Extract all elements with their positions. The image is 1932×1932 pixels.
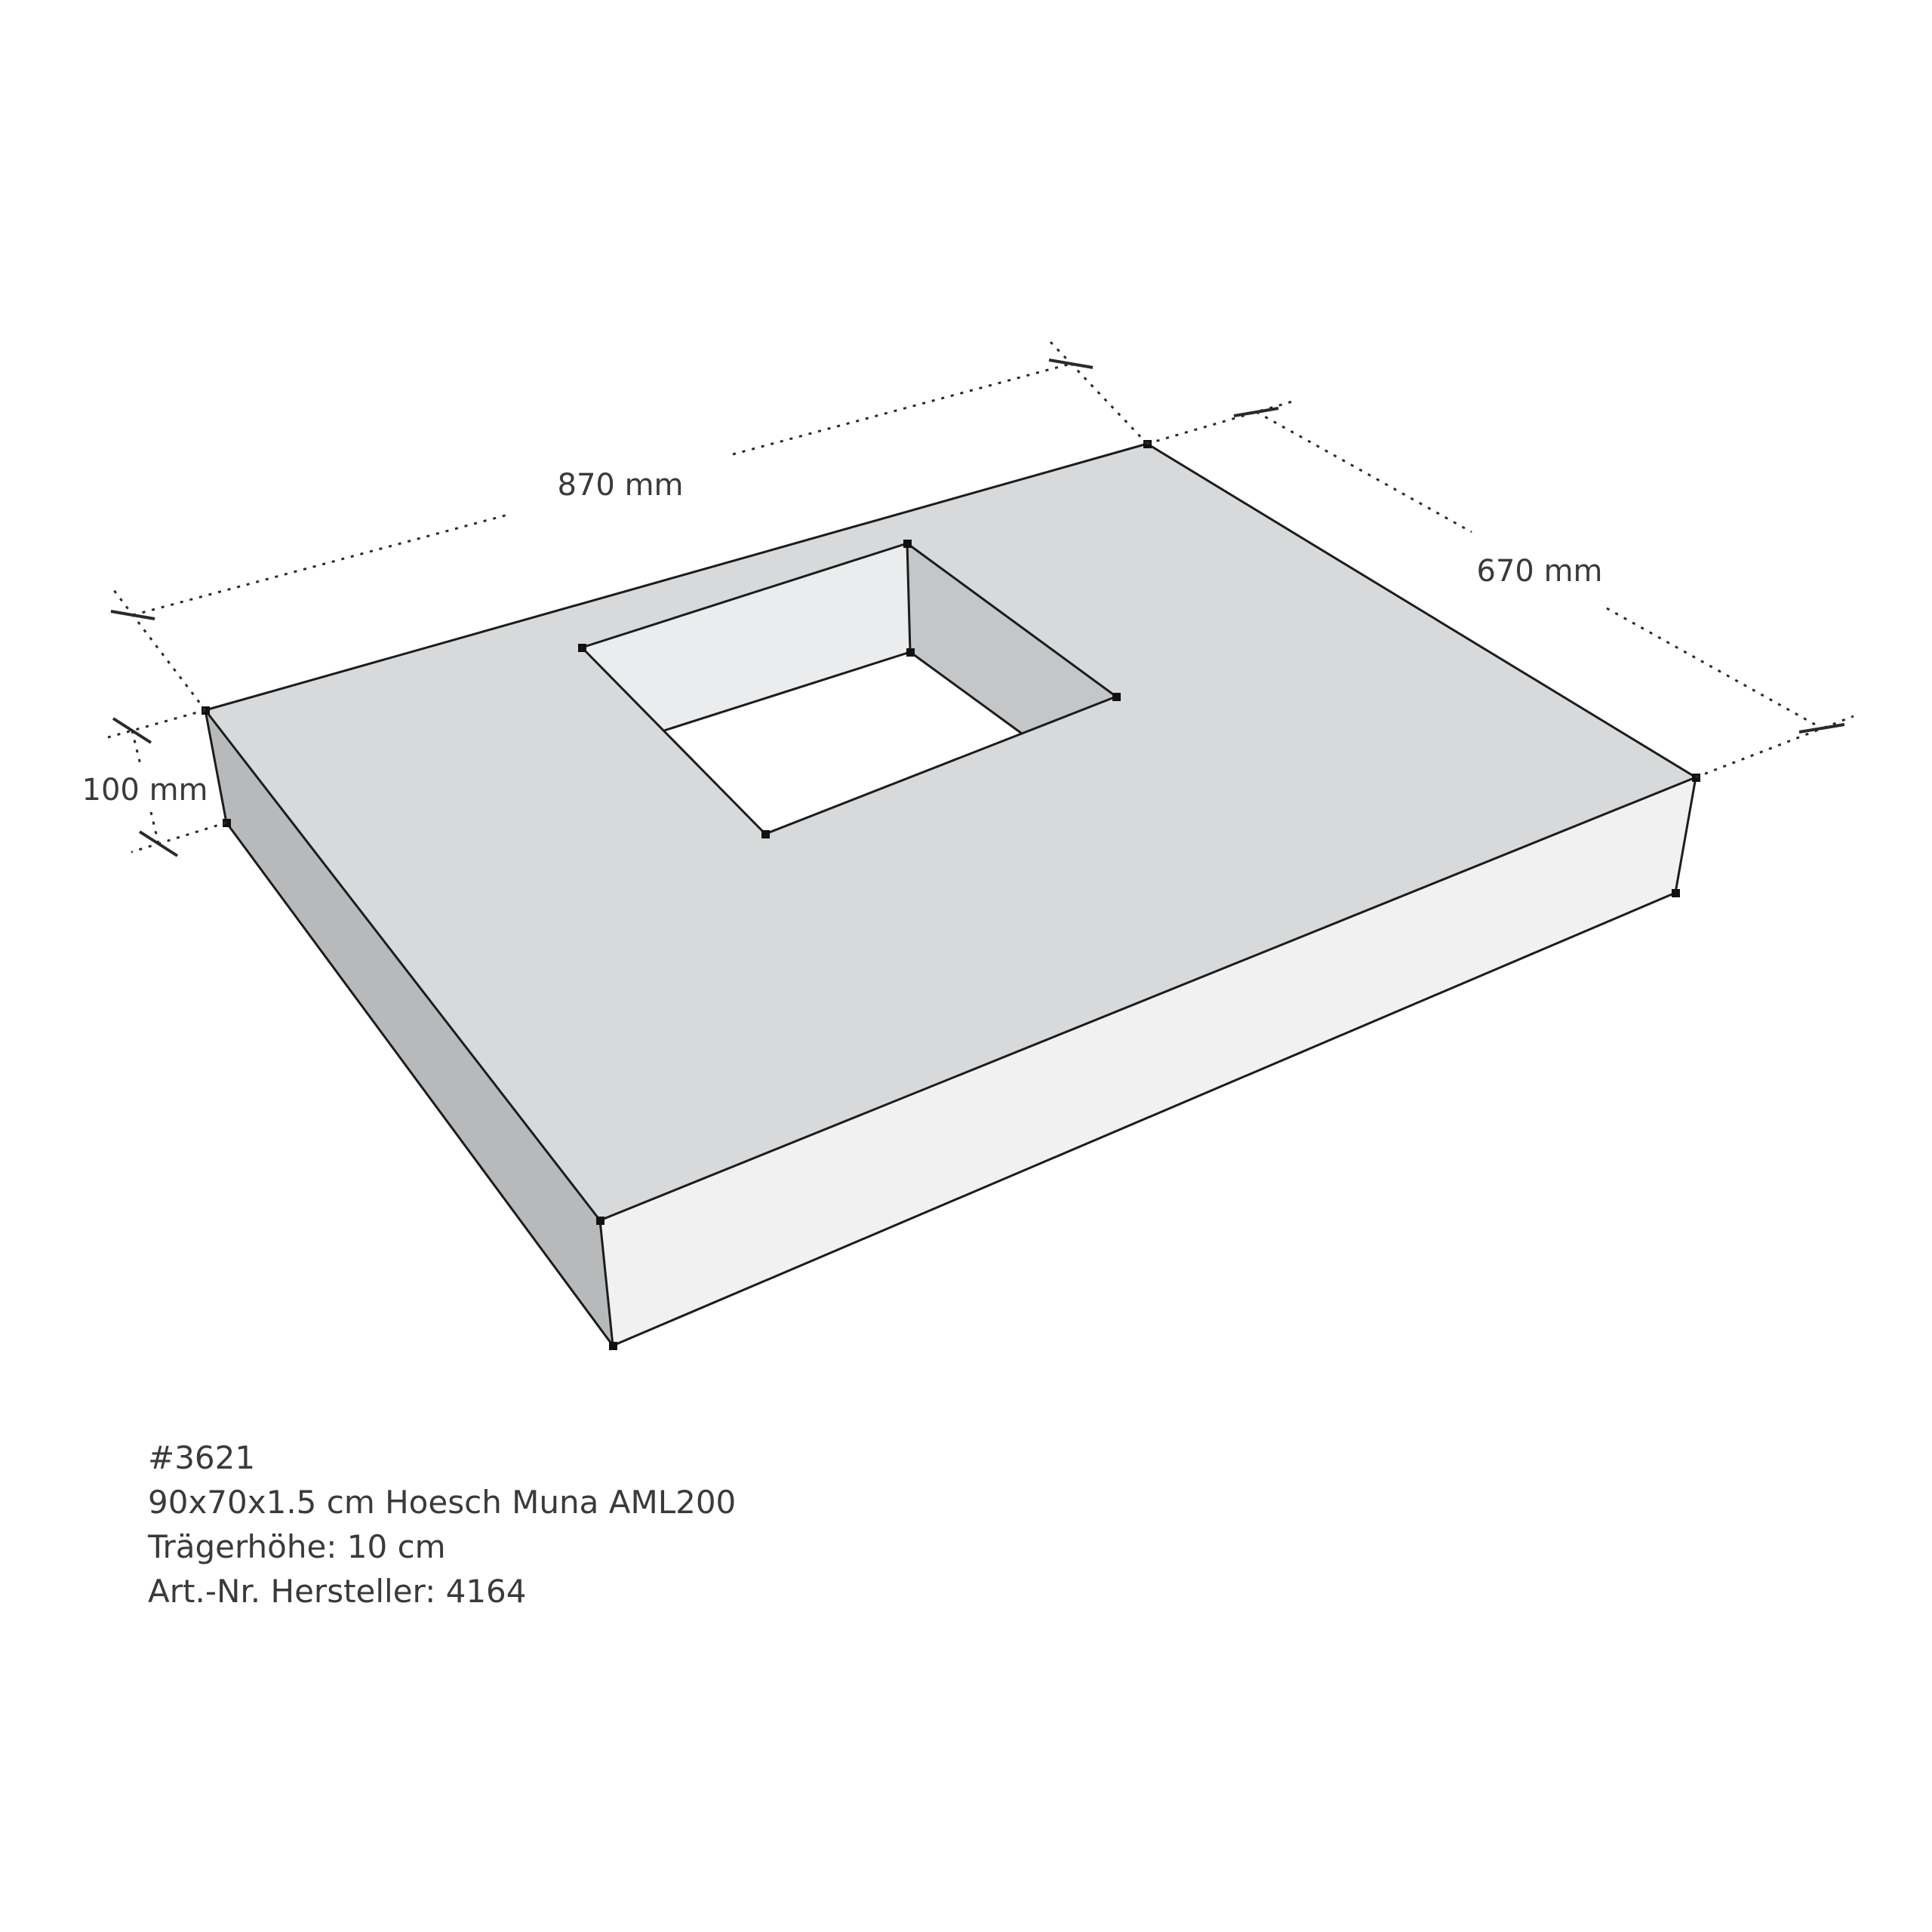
dimension-label-870: 870 mm (558, 468, 684, 503)
vertex-dot (1112, 693, 1121, 701)
vertex-dot (903, 540, 912, 548)
dimension-label-100: 100 mm (82, 773, 208, 808)
product-id: #3621 (148, 1439, 255, 1476)
product-article-number: Art.-Nr. Hersteller: 4164 (148, 1573, 526, 1610)
vertex-dot (578, 644, 586, 652)
vertex-dot (761, 830, 770, 838)
vertex-dot (609, 1342, 617, 1350)
dimension-label-670: 670 mm (1477, 554, 1603, 589)
vertex-dot (1672, 889, 1680, 897)
technical-drawing-page: 870 mm 670 mm (0, 0, 1932, 1932)
product-carrier-height: Trägerhöhe: 10 cm (147, 1528, 446, 1565)
shower-tray-support-diagram: 870 mm 670 mm (0, 0, 1932, 1932)
product-name: 90x70x1.5 cm Hoesch Muna AML200 (148, 1484, 736, 1521)
vertex-dot (596, 1217, 605, 1225)
vertex-dot (906, 648, 915, 657)
